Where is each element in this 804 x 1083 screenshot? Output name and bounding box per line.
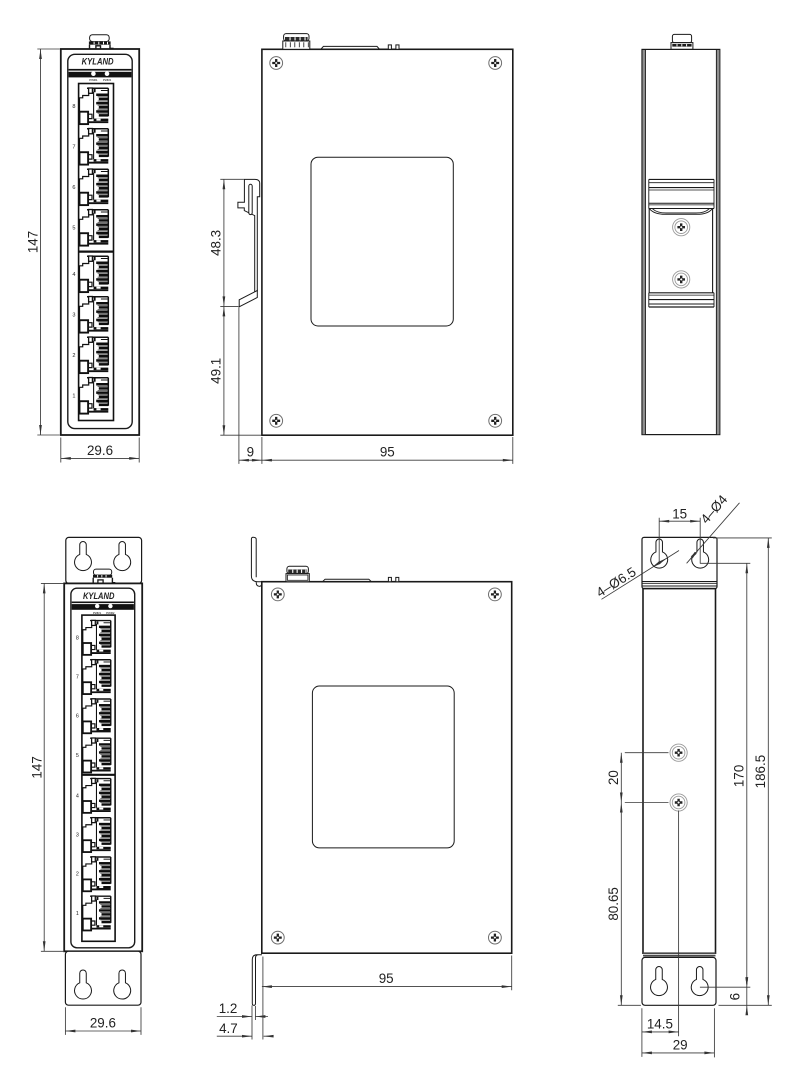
svg-text:3: 3 [72,312,75,318]
svg-text:2: 2 [72,353,75,359]
svg-text:4: 4 [76,793,79,799]
svg-text:48.3: 48.3 [209,230,224,256]
svg-text:1.2: 1.2 [219,1001,238,1016]
svg-text:1: 1 [72,393,75,399]
svg-text:49.1: 49.1 [209,358,224,384]
svg-text:9: 9 [247,445,254,460]
svg-text:80.65: 80.65 [606,887,621,921]
svg-text:29: 29 [673,1038,688,1053]
svg-text:7: 7 [72,144,75,150]
svg-text:6: 6 [76,714,79,720]
svg-text:14.5: 14.5 [647,1017,673,1032]
svg-text:KYLAND: KYLAND [82,56,114,66]
svg-text:15: 15 [672,506,687,521]
svg-text:95: 95 [379,971,394,986]
svg-text:95: 95 [380,445,395,460]
svg-text:29.6: 29.6 [87,443,113,458]
svg-text:7: 7 [76,675,79,681]
svg-text:29.6: 29.6 [90,1016,116,1031]
svg-text:6: 6 [72,185,75,191]
svg-text:2: 2 [76,872,79,878]
svg-text:147: 147 [29,756,44,778]
svg-text:8: 8 [76,635,79,641]
svg-text:186.5: 186.5 [753,755,768,789]
svg-text:6: 6 [728,993,743,1000]
svg-text:4: 4 [72,272,75,278]
svg-text:KYLAND: KYLAND [83,591,115,601]
svg-text:8: 8 [72,104,75,110]
svg-text:20: 20 [606,770,621,785]
svg-text:147: 147 [26,231,41,253]
svg-text:1: 1 [76,911,79,917]
svg-text:5: 5 [72,225,75,231]
svg-text:3: 3 [76,833,79,839]
svg-text:170: 170 [732,765,747,787]
svg-text:5: 5 [76,753,79,759]
svg-text:PWR1: PWR1 [89,78,98,82]
svg-text:4.7: 4.7 [219,1021,238,1036]
svg-text:PWR2: PWR2 [103,78,112,82]
